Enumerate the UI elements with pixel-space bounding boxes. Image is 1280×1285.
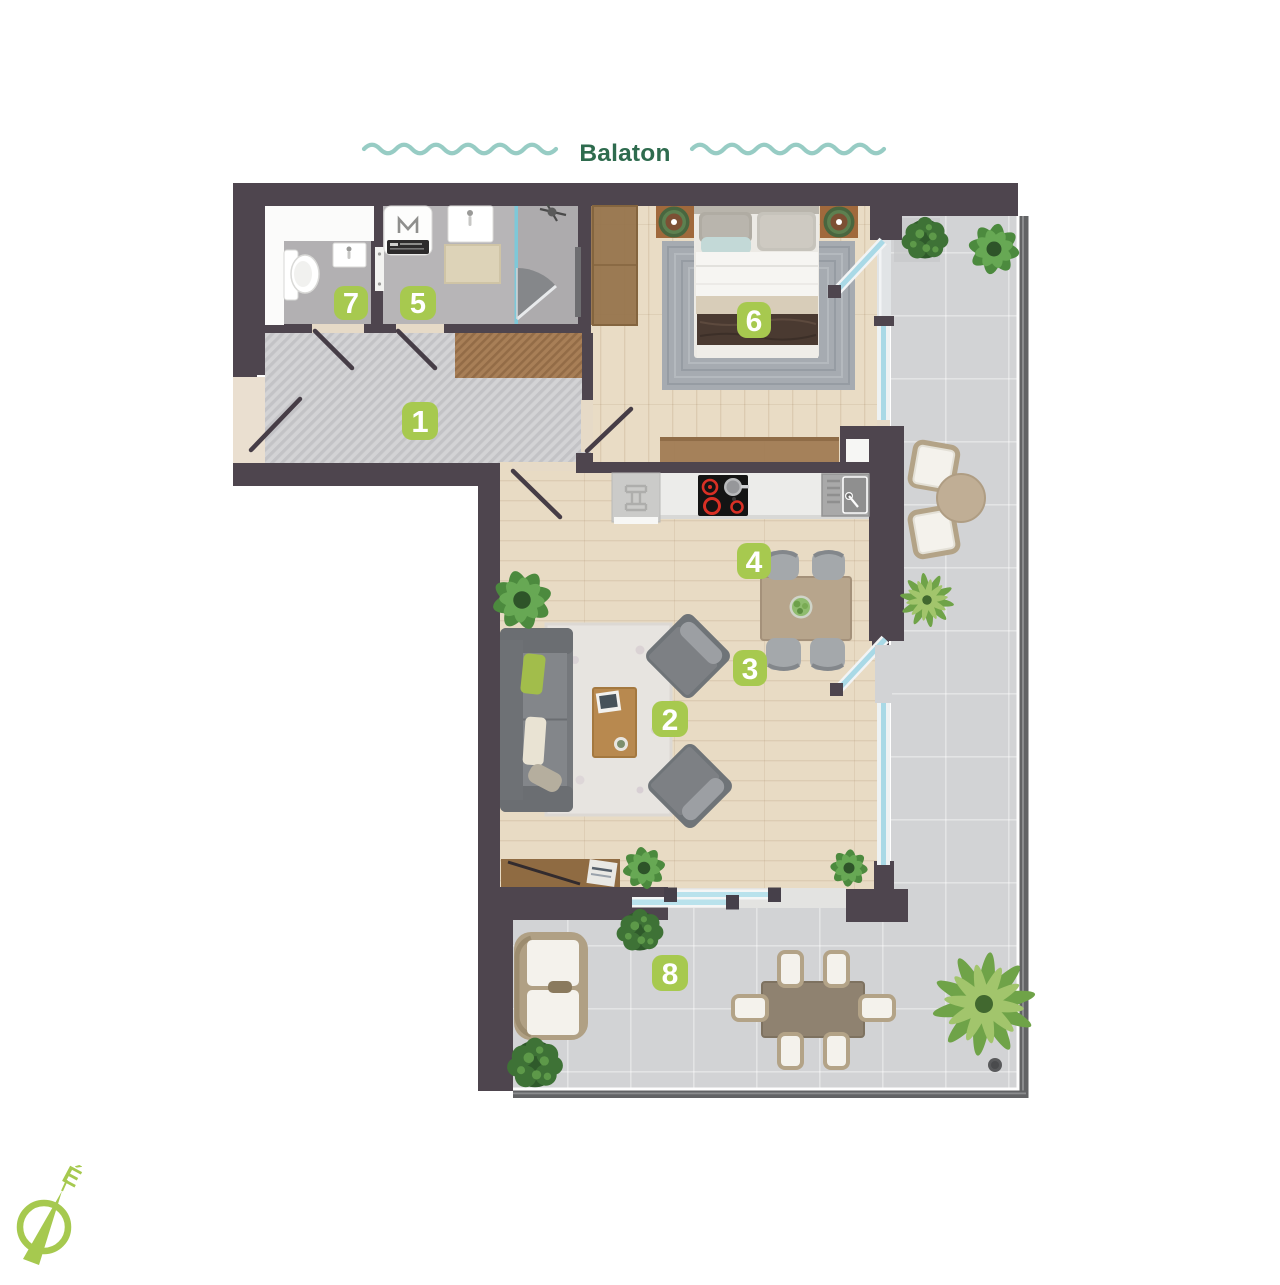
svg-text:Balaton: Balaton <box>579 140 670 167</box>
svg-text:4: 4 <box>746 546 763 579</box>
svg-text:2: 2 <box>662 704 679 737</box>
svg-text:8: 8 <box>662 958 679 991</box>
svg-text:6: 6 <box>746 305 763 338</box>
svg-text:1: 1 <box>411 404 428 439</box>
svg-text:7: 7 <box>343 288 359 320</box>
svg-text:3: 3 <box>742 653 759 686</box>
svg-text:5: 5 <box>410 288 426 320</box>
